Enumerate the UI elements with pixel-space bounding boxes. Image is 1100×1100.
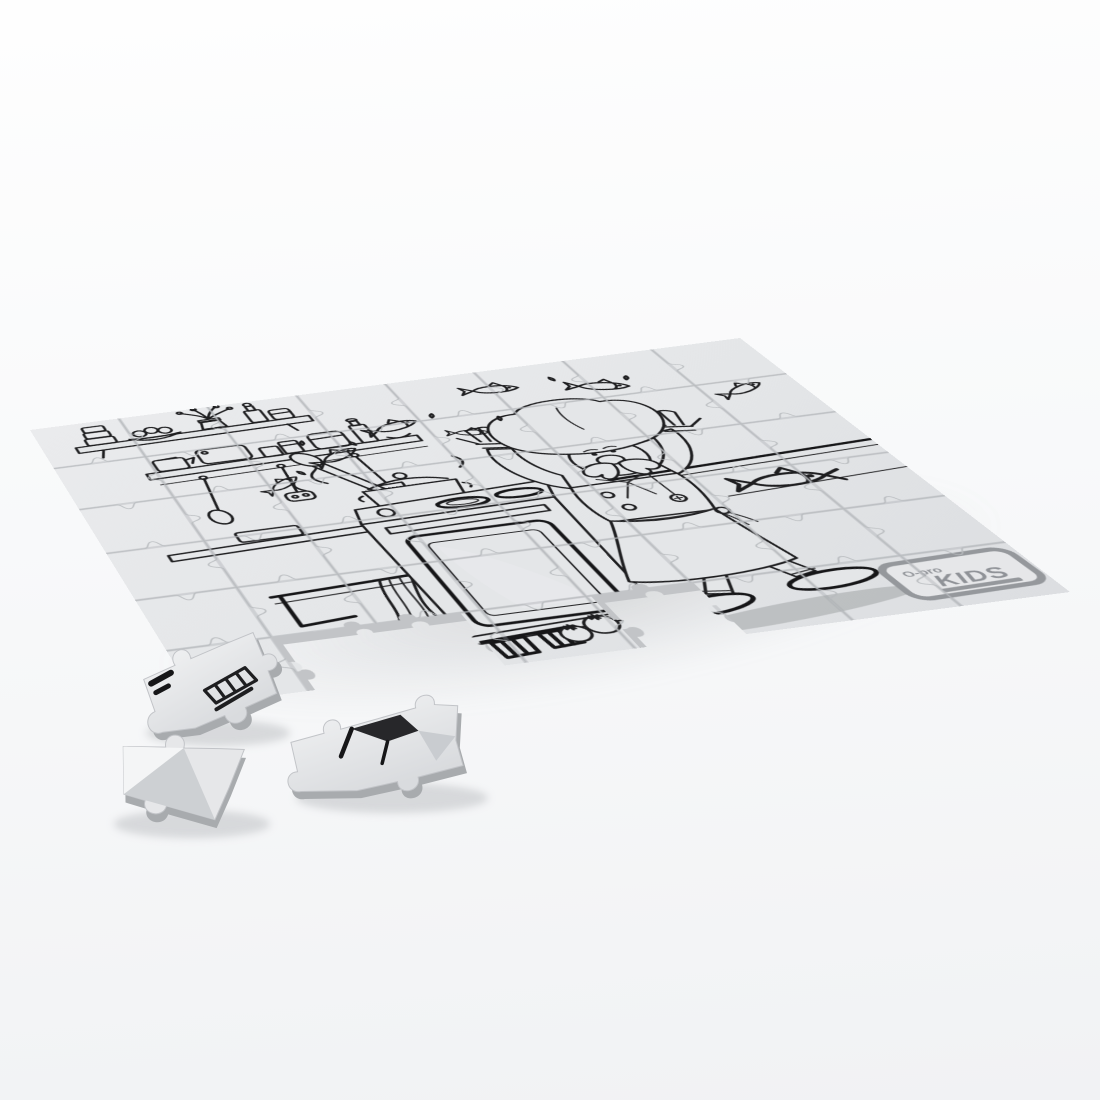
stage: O-pro KIDS [0, 0, 1100, 1100]
loose-pieces-layer [0, 0, 1100, 1100]
